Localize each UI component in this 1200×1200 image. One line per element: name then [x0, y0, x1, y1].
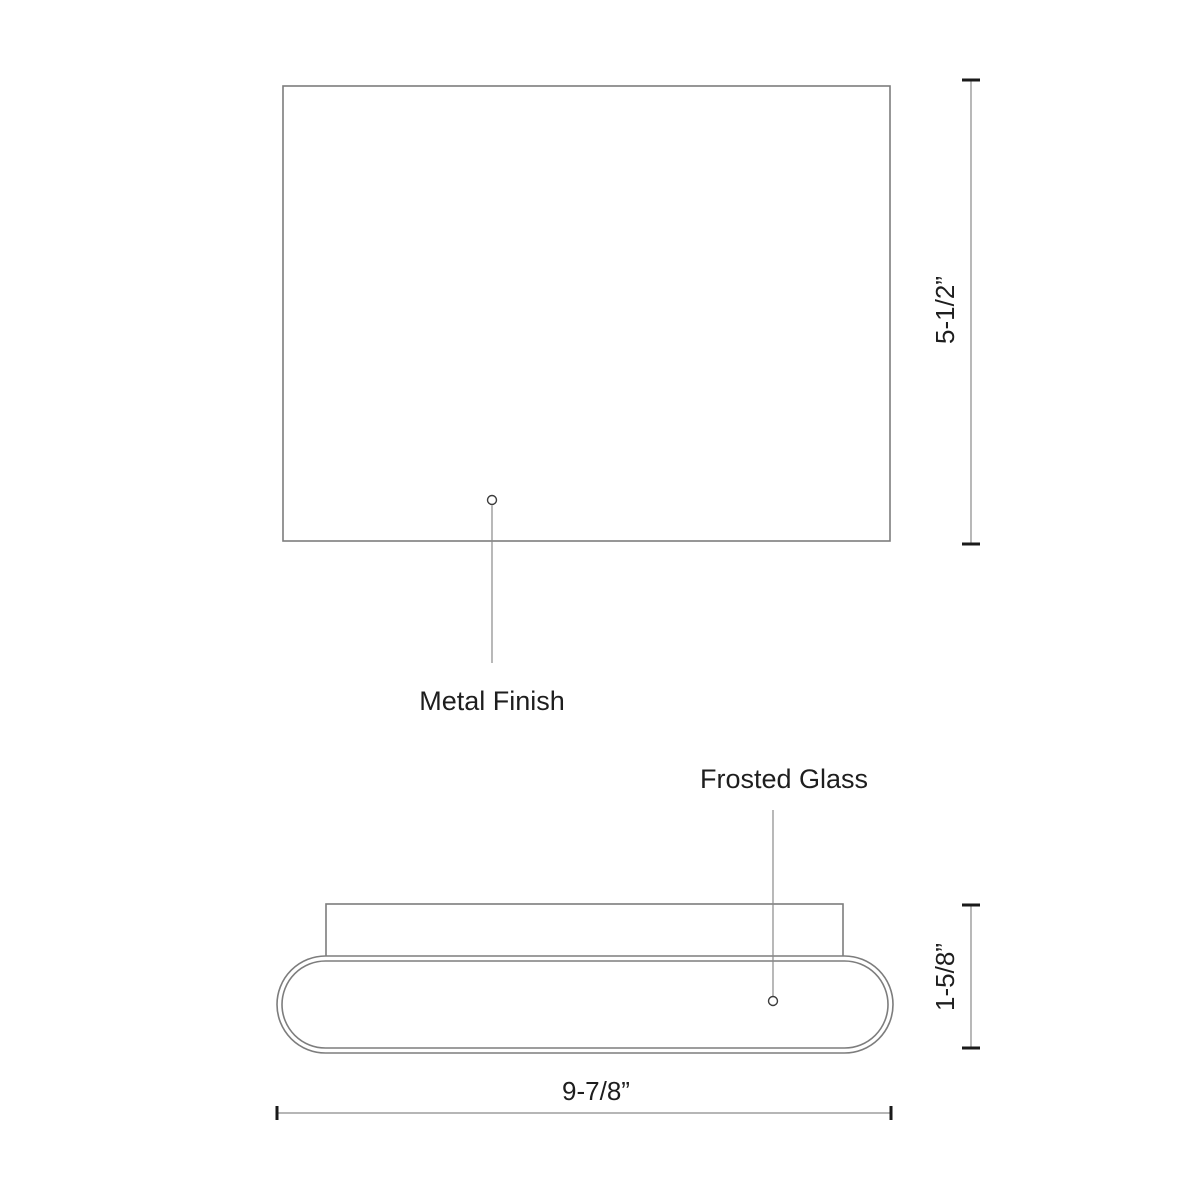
metal-finish-label: Metal Finish — [419, 686, 565, 716]
diffuser-outer-outline — [277, 956, 893, 1053]
width-dimension-label: 9-7/8” — [562, 1076, 630, 1106]
dimension-drawing-svg: Metal Finish 5-1/2” Frosted Glass 1-5/8” — [0, 0, 1200, 1200]
mounting-plate-outline — [326, 904, 843, 962]
metal-finish-callout-circle — [488, 496, 497, 505]
frosted-glass-label: Frosted Glass — [700, 764, 868, 794]
side-height-dimension-label: 1-5/8” — [930, 943, 960, 1011]
spec-sheet-drawing: Metal Finish 5-1/2” Frosted Glass 1-5/8” — [0, 0, 1200, 1200]
front-height-dimension-label: 5-1/2” — [930, 276, 960, 344]
front-view: Metal Finish 5-1/2” — [283, 80, 980, 716]
front-panel-outline — [283, 86, 890, 541]
side-view: Frosted Glass 1-5/8” 9-7/8” — [277, 764, 980, 1120]
frosted-glass-callout-circle — [769, 997, 778, 1006]
